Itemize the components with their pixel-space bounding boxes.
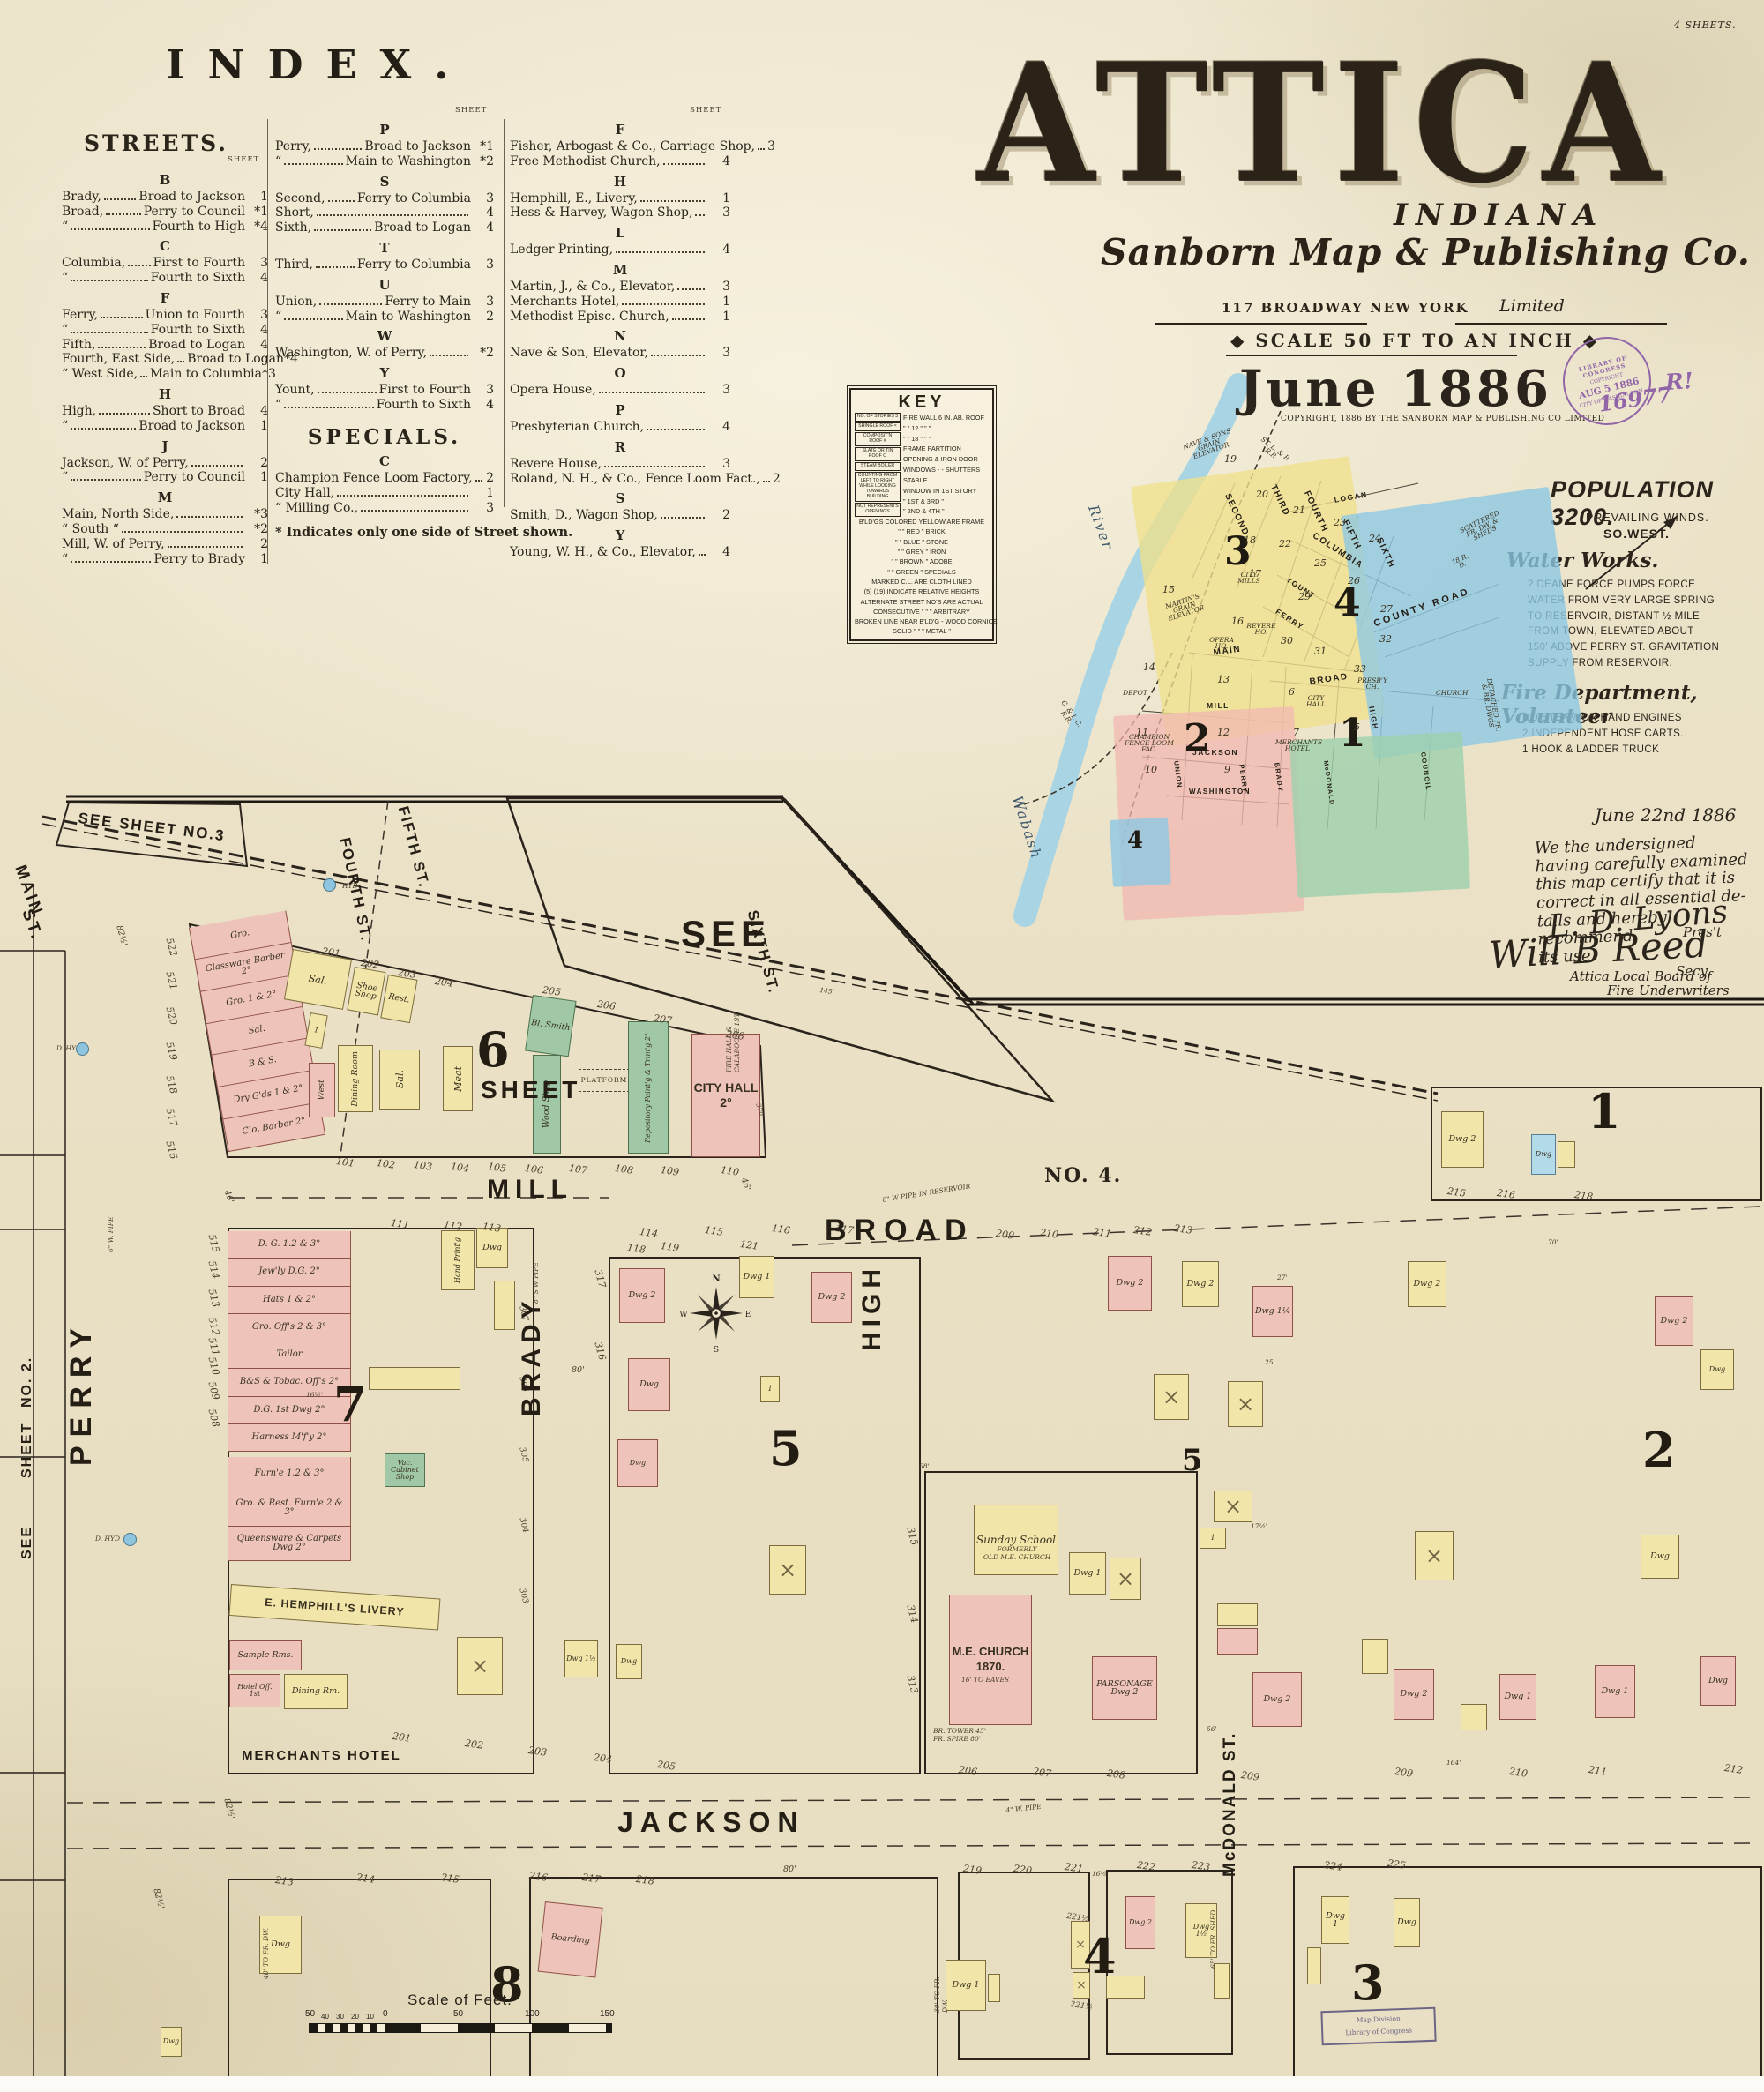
building-label: Dwg 2 <box>1401 1690 1428 1699</box>
index-entry-sheet: 4 <box>707 243 730 258</box>
street-label: HIGH <box>857 1219 887 1351</box>
dotted-leader <box>361 501 468 512</box>
building-label: Dwg 2 <box>1414 1280 1441 1289</box>
publisher-limited: Limited <box>1499 296 1565 316</box>
index-entry-name: “ <box>275 398 281 413</box>
index-entry-name: Fourth, East Side, <box>62 352 175 367</box>
dotted-leader <box>430 346 468 356</box>
building: Dwg 1 <box>946 1960 986 2011</box>
building-label: Dwg 1 <box>953 1981 980 1990</box>
building: Dwg <box>476 1228 508 1268</box>
index-entry-sheet: *3 <box>245 507 268 522</box>
building-label: Dwg <box>482 1244 502 1252</box>
inset-block-number: 18 <box>1244 534 1256 546</box>
building: Sample Rms. <box>229 1640 302 1670</box>
building-label: Dwg 2 <box>1661 1317 1688 1326</box>
building-label: Dwg 1¼ <box>1255 1307 1290 1316</box>
store-building: B&S & Tobac. Off's 2° <box>228 1369 351 1396</box>
index-entry-sheet: 1 <box>707 310 730 325</box>
house-number: 105 <box>487 1161 507 1175</box>
index-entry: Nave & Son, Elevator, 3 <box>510 346 730 361</box>
building: 1 <box>1200 1528 1226 1549</box>
building-label: × <box>1425 1545 1443 1566</box>
index-entry-name: Revere House, <box>510 457 602 472</box>
building: Dwg 2 <box>1108 1256 1152 1311</box>
house-number: 209 <box>1240 1769 1260 1783</box>
house-number: 110 <box>720 1164 740 1178</box>
dotted-leader <box>71 323 148 333</box>
dotted-leader <box>71 552 151 563</box>
index-entry-name: Y <box>380 365 390 381</box>
map-annotation: 25' <box>1265 1358 1275 1366</box>
index-entry-sheet: 2 <box>707 508 730 523</box>
index-entry-sheet: *4 <box>245 220 268 235</box>
building: Dwg <box>617 1439 658 1487</box>
building <box>1558 1141 1575 1168</box>
index-entry: Roland, N. H., & Co., Fence Loom Fact., … <box>510 472 730 487</box>
index-entry-name: High, <box>62 404 96 419</box>
index-entry-range: Broad to Jackson <box>138 419 245 434</box>
index-entry-name: C <box>379 453 390 469</box>
building: × <box>1415 1531 1454 1580</box>
block-number: 4 <box>1083 1928 1117 1984</box>
building: Dwg <box>1531 1134 1556 1175</box>
block-outline <box>228 1879 491 2092</box>
index-entry-sheet: 2 <box>485 471 494 486</box>
key-item: " " 18 " " " <box>903 434 989 445</box>
house-number: 111 <box>390 1217 410 1231</box>
map-annotation: 80' <box>783 1864 796 1874</box>
building <box>1217 1628 1258 1655</box>
house-number: 212 <box>1132 1224 1153 1238</box>
index-entry: Martin, J., & Co., Elevator, 3 <box>510 280 730 295</box>
index-entry: B <box>62 172 268 188</box>
map-annotation: 30' TO FR. DW. <box>933 1974 949 2013</box>
index-entry-name: Methodist Episc. Church, <box>510 310 669 325</box>
map-annotation: 80' <box>572 1365 585 1375</box>
building-label: Dwg <box>639 1380 659 1389</box>
street-label: MILL <box>487 1175 573 1205</box>
house-number: 108 <box>614 1162 634 1177</box>
index-entry-name: M <box>158 489 173 505</box>
house-number: 109 <box>660 1164 680 1178</box>
index-entry-sheet: 1 <box>245 470 268 485</box>
dotted-leader <box>672 310 705 320</box>
building-label: Sample Rms. <box>238 1651 294 1660</box>
block-number: 2 <box>1642 1422 1676 1478</box>
inset-block-number: 29 <box>1298 591 1311 602</box>
index-entry-sheet: 1 <box>245 552 268 567</box>
index-entry: S <box>510 490 730 506</box>
building: Dwg <box>1394 1898 1420 1947</box>
building: Dwg 1 <box>1499 1674 1536 1720</box>
index-entry: High, Short to Broad 4 <box>62 404 268 419</box>
index-entry: S <box>275 174 494 190</box>
dotted-leader <box>677 280 705 290</box>
index-entry-range: Broad to Jackson <box>364 139 471 154</box>
index-entry: Fisher, Arbogast & Co., Carriage Shop, 3 <box>510 139 730 154</box>
index-entry: Columbia, First to Fourth 3 <box>62 256 268 271</box>
ornament-rule <box>1155 323 1367 325</box>
index-entry: N <box>510 328 730 344</box>
index-entry-sheet: 2 <box>471 310 494 325</box>
scale-bar <box>309 2023 612 2033</box>
building-label: Dwg 1 <box>1074 1569 1102 1578</box>
building-label: Dwg 2 <box>629 1291 656 1300</box>
inset-street-label: MILL <box>1207 701 1230 710</box>
index-entry: W <box>275 328 494 344</box>
index-entry: “ Main to Washington *2 <box>275 154 494 169</box>
index-entry-range: Perry to Council <box>144 205 245 220</box>
index-entry-name: City Hall, <box>275 486 334 501</box>
house-number: 114 <box>639 1226 659 1240</box>
index-entry-name: Champion Fence Loom Factory, <box>275 471 473 486</box>
building-label: Dwg 2 <box>1449 1135 1476 1144</box>
index-entry-sheet: 3 <box>707 205 730 220</box>
index-column-3: F Fisher, Arbogast & Co., Carriage Shop,… <box>510 117 730 560</box>
key-item: " " 12 " " " <box>903 423 989 434</box>
index-entry: C <box>62 238 268 254</box>
inset-block-number: 26 <box>1348 575 1360 587</box>
dotted-leader <box>71 271 148 281</box>
index-entry-sheet: 4 <box>471 398 494 413</box>
index-entry: O <box>510 365 730 381</box>
index-entry: City Hall, 1 <box>275 486 494 501</box>
building-label: × <box>1237 1393 1254 1415</box>
house-number: 208 <box>1106 1767 1126 1782</box>
index-entry-sheet: *1 <box>471 139 494 154</box>
index-entry: “ Fourth to Sixth 4 <box>62 271 268 286</box>
index-entry: “ Fourth to Sixth 4 <box>62 323 268 338</box>
house-number: 225 <box>1387 1857 1407 1872</box>
index-entry-sheet: 4 <box>245 323 268 338</box>
building-label: × <box>1224 1496 1242 1517</box>
building-label: Dwg 1 <box>1323 1912 1348 1929</box>
index-entry: Champion Fence Loom Factory, 2 <box>275 471 494 486</box>
house-number: 204 <box>434 975 454 990</box>
index-entry-name: Perry, <box>275 139 311 154</box>
index-entry: Third, Ferry to Columbia 3 <box>275 258 494 273</box>
dotted-leader <box>640 191 705 202</box>
building-label: Sunday School <box>976 1535 1056 1545</box>
dotted-leader <box>319 295 382 305</box>
index-entry-name: “ <box>62 470 68 485</box>
building-label: × <box>1117 1568 1134 1589</box>
key-symbol-item: COUNTING FROM LEFT TO RIGHT WHILE LOOKIN… <box>855 472 901 502</box>
building: Bl. Smith <box>525 995 576 1057</box>
index-entry-sheet: 3 <box>767 139 775 154</box>
index-entry-name: Y <box>616 527 625 543</box>
index-entry-name: “ <box>62 419 68 434</box>
scale-of-feet-label: Scale of Feet. <box>407 1991 512 2009</box>
house-number: 216 <box>1496 1187 1516 1201</box>
index-entry-name: C <box>160 238 170 254</box>
building-label: Boarding <box>550 1933 590 1946</box>
index-entry-sheet: *3 <box>262 367 276 382</box>
index-entry-name: Yount, <box>275 383 315 398</box>
index-entry: “ Perry to Brady 1 <box>62 552 268 567</box>
dotted-leader <box>128 256 150 266</box>
index-entry-name: “ West Side, <box>62 367 138 382</box>
scale-tick: 150 <box>600 2009 615 2019</box>
map-annotation: FIRE HALL & CALABOOSE 1ST <box>725 991 741 1072</box>
inset-building-callout: CHAMPION FENCE LOOM FAC. <box>1122 734 1177 752</box>
building: Dwg 2 <box>1655 1296 1693 1346</box>
index-entry-sheet: 3 <box>707 346 730 361</box>
index-entry: U <box>275 277 494 293</box>
building: Dining Rm. <box>284 1674 348 1709</box>
index-entry-name: Columbia, <box>62 256 125 271</box>
building: Dwg 1 <box>739 1256 774 1298</box>
house-number: 121 <box>739 1238 759 1252</box>
inset-building-callout: REVERE HO. <box>1245 623 1277 635</box>
dotted-leader <box>71 419 136 430</box>
index-entry-sheet: 1 <box>245 419 268 434</box>
index-entry-sheet: 4 <box>245 404 268 419</box>
index-column-2: P Perry, Broad to Jackson *1 “ Main to W… <box>275 117 494 540</box>
store-building: Gro. Off's 2 & 3° <box>228 1314 351 1341</box>
index-entry-name: Short, <box>275 205 314 220</box>
street-label: NO. 2. <box>19 1342 35 1408</box>
index-entry: F <box>62 290 268 306</box>
index-entry-name: “ <box>62 271 68 286</box>
dotted-leader <box>604 457 705 467</box>
index-entry-name: Union, <box>275 295 317 310</box>
house-number: 219 <box>962 1863 983 1877</box>
dotted-leader <box>699 545 706 556</box>
copyright-line: COPYRIGHT, 1886 BY THE SANBORN MAP & PUB… <box>1281 415 1604 423</box>
house-number: 213 <box>274 1874 295 1888</box>
house-number: 202 <box>464 1737 484 1752</box>
building: 1 <box>760 1376 780 1402</box>
dotted-leader <box>318 383 377 393</box>
building: Dwg 2 <box>1394 1669 1434 1720</box>
building-label: Dwg <box>1650 1552 1670 1561</box>
building <box>1461 1704 1487 1730</box>
street-label: SHEET <box>481 1076 580 1104</box>
winds-direction: SO.WEST. <box>1603 527 1670 541</box>
building-label: CITY HALL 2° <box>693 1080 759 1111</box>
index-entry: P <box>510 402 730 418</box>
key-item: MARKED C.L. ARE CLOTH LINED <box>855 577 989 587</box>
index-entry-name: “ <box>62 552 68 567</box>
note-line: 1 HOOK & LADDER TRUCK <box>1522 743 1684 758</box>
index-entry-name: “ <box>275 154 281 169</box>
key-item: OPENING & IRON DOOR <box>903 454 989 465</box>
house-number: 222 <box>1136 1859 1156 1873</box>
key-item: " " RED " BRICK <box>855 527 989 536</box>
house-number: 205 <box>656 1759 676 1773</box>
scan-edge <box>0 2076 1764 2092</box>
index-entry: Union, Ferry to Main 3 <box>275 295 494 310</box>
index-entry: M <box>510 262 730 278</box>
index-entry: L <box>510 225 730 241</box>
building: × <box>457 1637 503 1695</box>
dotted-leader <box>328 191 355 202</box>
building: × <box>1228 1381 1263 1427</box>
index-entry-name: M <box>613 262 628 278</box>
index-entry-name: “ <box>275 310 281 325</box>
store-building: D.G. 1st Dwg 2° <box>228 1397 351 1424</box>
key-item: B'LD'GS COLORED YELLOW ARE FRAME <box>855 517 989 527</box>
key-item: WINDOWS - - SHUTTERS <box>903 465 989 475</box>
building-label: 1 <box>1210 1535 1215 1542</box>
house-number: 101 <box>335 1155 355 1169</box>
store-building: D. G. 1.2 & 3° <box>228 1231 351 1259</box>
building-label: Dining Rm. <box>292 1687 340 1696</box>
index-entry-range: Short to Broad <box>153 404 245 419</box>
index-entry-name: Sixth, <box>275 220 311 235</box>
map-annotation: 6" W. PIPE <box>107 1155 115 1252</box>
map-annotation: 65' TO FR. SHED <box>1209 1893 1217 1969</box>
house-number: 215 <box>440 1872 460 1886</box>
inset-block-number: 13 <box>1217 674 1230 685</box>
building: Boarding <box>538 1901 603 1977</box>
inset-block-number: 14 <box>1143 661 1155 673</box>
map-annotation: 16½' <box>1092 1870 1109 1878</box>
index-entry: Ledger Printing, 4 <box>510 243 730 258</box>
building: Dwg <box>1700 1349 1734 1390</box>
index-entry-range: Main to Washington <box>346 154 471 169</box>
index-entry: “ Fourth to High *4 <box>62 220 268 235</box>
index-entry-name: Opera House, <box>510 383 596 398</box>
index-entry-name: Nave & Son, Elevator, <box>510 346 648 361</box>
index-entry-sheet: 4 <box>471 205 494 220</box>
building: Dwg 1 <box>1595 1665 1635 1718</box>
building-label: Dwg <box>1709 1366 1725 1373</box>
index-entry: Fifth, Broad to Logan 4 <box>62 338 268 353</box>
inset-block-number: 5 <box>1354 721 1360 733</box>
dotted-leader <box>284 310 342 320</box>
index-entry: Second, Ferry to Columbia 3 <box>275 191 494 206</box>
building-label: × <box>779 1559 796 1580</box>
index-entry: Perry, Broad to Jackson *1 <box>275 139 494 154</box>
house-number: 211 <box>1092 1226 1112 1240</box>
index-entry-range: Broad to Logan <box>187 352 284 367</box>
sheets-note: 4 SHEETS. <box>1674 19 1737 31</box>
building: Repository Paint'g & Trim'g 2° <box>628 1021 669 1154</box>
street-label: McDONALD ST. <box>1221 1665 1240 1877</box>
publisher-address: 117 BROADWAY NEW YORK <box>1222 300 1469 316</box>
index-entry: C <box>275 453 494 469</box>
inset-district <box>1289 732 1470 898</box>
index-entry: H <box>62 386 268 402</box>
key-item: " " BLUE " STONE <box>855 537 989 547</box>
key-item: " " GREEN " SPECIALS <box>855 567 989 577</box>
inset-block-number: 20 <box>1256 489 1268 500</box>
dotted-leader <box>337 486 468 497</box>
building-label: Hotel Off. 1st <box>231 1684 279 1698</box>
dotted-leader <box>758 139 765 150</box>
inset-block-number: 23 <box>1334 517 1346 528</box>
inset-block-number: 11 <box>1136 727 1148 738</box>
index-entry-name: Jackson, W. of Perry, <box>62 456 189 471</box>
dotted-leader <box>284 398 374 408</box>
index-entry-name: Presbyterian Church, <box>510 420 644 435</box>
map-annotation: 17½' <box>1251 1522 1267 1530</box>
building-label: M.E. CHURCH 1870. <box>951 1645 1030 1675</box>
building-label: Dwg 1½ <box>566 1655 596 1662</box>
house-number: 218 <box>1573 1189 1594 1203</box>
block-number: 6 <box>476 1021 510 1078</box>
inset-block-number: 19 <box>1224 453 1237 465</box>
index-entry-sheet: 1 <box>707 295 730 310</box>
building-label: Dwg <box>621 1658 637 1665</box>
building-label: 1 <box>313 1027 318 1035</box>
key-item: FRAME PARTITION <box>903 444 989 454</box>
building: × <box>1110 1558 1141 1600</box>
index-entry: “ South “ *2 <box>62 522 268 537</box>
building: × <box>1214 1491 1252 1522</box>
scale-tick: 30 <box>336 2013 344 2021</box>
inset-block-number: 9 <box>1224 764 1230 775</box>
building-label: E. HEMPHILL'S LIVERY <box>265 1596 405 1618</box>
house-number: 203 <box>527 1745 548 1759</box>
scale-tick: 20 <box>351 2013 359 2021</box>
map-annotation: 56' <box>1207 1725 1217 1733</box>
house-number: 220 <box>1013 1863 1033 1877</box>
index-divider <box>504 119 505 507</box>
dotted-leader <box>647 420 705 430</box>
inset-building-callout: DEPOT <box>1122 690 1148 696</box>
index-entry-range: Broad to Logan <box>148 338 245 353</box>
inset-block-number: 27 <box>1380 603 1393 615</box>
inset-block-number: 7 <box>1293 727 1299 738</box>
block7-store-row-south: Furn'e 1.2 & 3°Gro. & Rest. Furn'e 2 & 3… <box>228 1457 351 1561</box>
dotted-leader <box>317 205 468 216</box>
block7-store-row: D. G. 1.2 & 3°Jew'ly D.G. 2°Hats 1 & 2°G… <box>228 1231 351 1452</box>
index-entry-name: Hemphill, E., Livery, <box>510 191 638 206</box>
dotted-leader <box>663 154 705 165</box>
index-entry-name: R <box>615 439 625 455</box>
index-entry-name: F <box>161 290 170 306</box>
house-number: 206 <box>596 998 617 1012</box>
sanborn-map-sheet: N E S W 4 SHEETS. INDEX. STREETS. SHEET … <box>0 0 1764 2092</box>
building: Dwg 1 <box>1069 1552 1106 1595</box>
index-entry-sheet: 4 <box>707 154 730 169</box>
dotted-leader <box>106 205 141 215</box>
building-label: Dwg 1 <box>1505 1692 1532 1701</box>
building: Dwg 2 <box>1252 1672 1302 1727</box>
index-entry: Short, 4 <box>275 205 494 220</box>
inset-block-number: 21 <box>1293 504 1305 516</box>
index-entry-sheet: 3 <box>471 501 494 516</box>
key-item: (5) (19) INDICATE RELATIVE HEIGHTS <box>855 587 989 596</box>
index-entry: Brady, Broad to Jackson 1 <box>62 190 268 205</box>
store-building: Hats 1 & 2° <box>228 1287 351 1314</box>
building-label: Shoe Shop <box>351 981 382 1002</box>
index-entry-name: Washington, W. of Perry, <box>275 346 427 361</box>
index-entry-name: U <box>378 277 390 293</box>
building-label: Dwg <box>163 2038 179 2045</box>
key-symbol-item: STEAM BOILER <box>855 462 901 471</box>
dotted-leader <box>651 346 705 356</box>
map-date: June 1886 <box>1239 360 1552 418</box>
index-entry: Opera House, 3 <box>510 383 730 398</box>
building: Dwg <box>616 1644 642 1679</box>
streets-heading: STREETS. <box>84 131 228 156</box>
index-entry: Hess & Harvey, Wagon Shop, 3 <box>510 205 730 220</box>
inset-block-number: 22 <box>1279 538 1291 549</box>
scale-tick: 50 <box>305 2009 315 2019</box>
house-number: 209 <box>1394 1766 1414 1780</box>
map-annotation: BR. TOWER 45' FR. SPIRE 80' <box>933 1727 986 1743</box>
building-label: Bl. Smith <box>531 1019 571 1033</box>
index-entry-sheet: 1 <box>707 191 730 206</box>
block-number: 5 <box>1182 1443 1203 1478</box>
house-number: 209 <box>995 1228 1015 1242</box>
house-number: 211 <box>1588 1764 1608 1778</box>
